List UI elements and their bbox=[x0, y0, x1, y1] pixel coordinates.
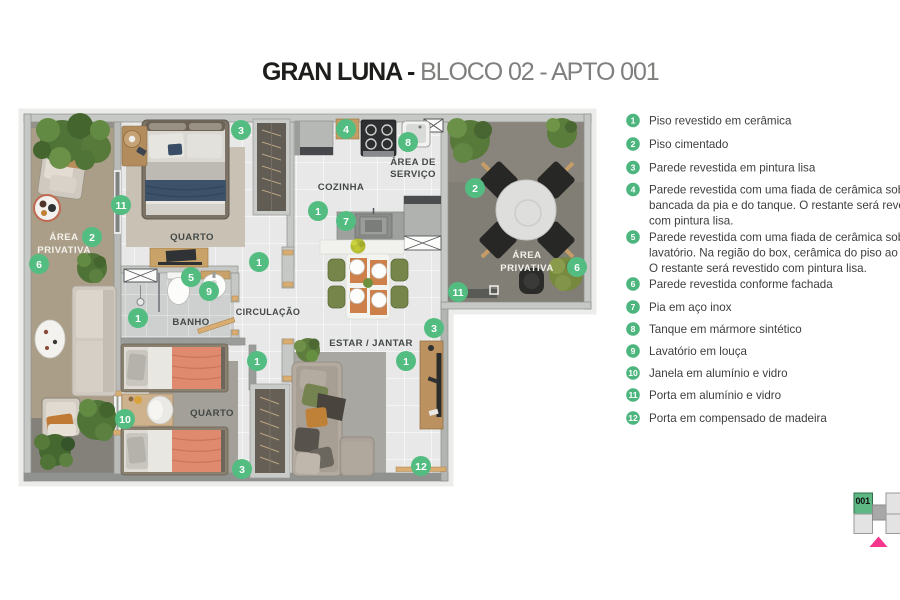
svg-text:PRIVATIVA: PRIVATIVA bbox=[37, 245, 91, 256]
svg-text:12: 12 bbox=[415, 461, 427, 473]
svg-text:1: 1 bbox=[315, 206, 321, 218]
svg-text:1: 1 bbox=[135, 313, 141, 325]
svg-text:9: 9 bbox=[631, 346, 636, 356]
svg-text:COZINHA: COZINHA bbox=[318, 182, 365, 193]
svg-text:ESTAR / JANTAR: ESTAR / JANTAR bbox=[329, 338, 413, 349]
svg-text:2: 2 bbox=[89, 232, 95, 244]
svg-text:ÁREA: ÁREA bbox=[512, 249, 541, 261]
svg-text:11: 11 bbox=[452, 287, 463, 299]
svg-text:6: 6 bbox=[631, 279, 636, 289]
svg-text:bancada da pia e do tanque. O: bancada da pia e do tanque. O restante s… bbox=[649, 199, 900, 212]
svg-text:Parede revestida com uma fiada: Parede revestida com uma fiada de cerâmi… bbox=[649, 231, 900, 244]
svg-text:11: 11 bbox=[115, 200, 126, 212]
svg-text:ÁREA: ÁREA bbox=[49, 231, 78, 243]
svg-text:4: 4 bbox=[343, 124, 349, 136]
svg-text:10: 10 bbox=[119, 414, 131, 426]
svg-text:1: 1 bbox=[631, 115, 636, 125]
svg-text:8: 8 bbox=[405, 137, 411, 149]
svg-text:8: 8 bbox=[631, 324, 636, 334]
svg-text:11: 11 bbox=[628, 390, 637, 400]
svg-text:4: 4 bbox=[631, 184, 636, 194]
svg-text:lavatório. Na região do box, c: lavatório. Na região do box, cerâmica do… bbox=[649, 247, 900, 260]
svg-text:Parede revestida conforme fach: Parede revestida conforme fachada bbox=[649, 278, 833, 291]
svg-text:9: 9 bbox=[206, 286, 212, 298]
svg-text:com pintura lisa.: com pintura lisa. bbox=[649, 215, 733, 228]
svg-text:CIRCULAÇÃO: CIRCULAÇÃO bbox=[236, 307, 301, 317]
svg-text:Piso revestido em cerâmica: Piso revestido em cerâmica bbox=[649, 115, 792, 128]
svg-text:Parede revestida em pintura li: Parede revestida em pintura lisa bbox=[649, 162, 816, 175]
svg-text:1: 1 bbox=[254, 356, 260, 368]
svg-text:5: 5 bbox=[188, 272, 194, 284]
svg-text:001: 001 bbox=[856, 496, 871, 506]
svg-text:Porta em compensado de madeira: Porta em compensado de madeira bbox=[649, 412, 827, 425]
svg-text:6: 6 bbox=[574, 262, 580, 274]
svg-text:GRAN LUNA - BLOCO 02 - APTO 00: GRAN LUNA - BLOCO 02 - APTO 001 bbox=[262, 58, 659, 86]
svg-text:6: 6 bbox=[36, 259, 42, 271]
svg-text:BANHO: BANHO bbox=[172, 317, 209, 328]
svg-text:2: 2 bbox=[631, 139, 636, 149]
svg-text:10: 10 bbox=[628, 368, 638, 378]
svg-text:2: 2 bbox=[472, 183, 478, 195]
svg-text:Piso cimentado: Piso cimentado bbox=[649, 138, 728, 151]
svg-text:3: 3 bbox=[431, 323, 437, 335]
svg-text:SERVIÇO: SERVIÇO bbox=[390, 169, 436, 180]
svg-text:ÁREA DE: ÁREA DE bbox=[390, 156, 436, 168]
svg-text:Parede revestida com uma fiada: Parede revestida com uma fiada de cerâmi… bbox=[649, 184, 900, 197]
svg-text:7: 7 bbox=[343, 216, 349, 228]
svg-text:O restante será revestido com: O restante será revestido com pintura li… bbox=[649, 262, 867, 275]
svg-text:3: 3 bbox=[239, 464, 245, 476]
svg-text:1: 1 bbox=[256, 257, 262, 269]
svg-text:12: 12 bbox=[628, 413, 638, 423]
svg-text:QUARTO: QUARTO bbox=[170, 232, 214, 243]
svg-text:Lavatório em louça: Lavatório em louça bbox=[649, 345, 748, 358]
svg-text:Porta em alumínio e vidro: Porta em alumínio e vidro bbox=[649, 389, 781, 402]
svg-text:7: 7 bbox=[631, 302, 636, 312]
svg-text:5: 5 bbox=[631, 232, 636, 242]
svg-text:Pia em aço inox: Pia em aço inox bbox=[649, 301, 732, 314]
svg-text:QUARTO: QUARTO bbox=[190, 408, 234, 419]
svg-text:PRIVATIVA: PRIVATIVA bbox=[500, 263, 554, 274]
svg-text:Janela em alumínio e vidro: Janela em alumínio e vidro bbox=[649, 367, 788, 380]
svg-text:3: 3 bbox=[238, 125, 244, 137]
svg-text:1: 1 bbox=[403, 356, 409, 368]
svg-text:Tanque em mármore sintético: Tanque em mármore sintético bbox=[649, 323, 802, 336]
svg-text:3: 3 bbox=[631, 162, 636, 172]
